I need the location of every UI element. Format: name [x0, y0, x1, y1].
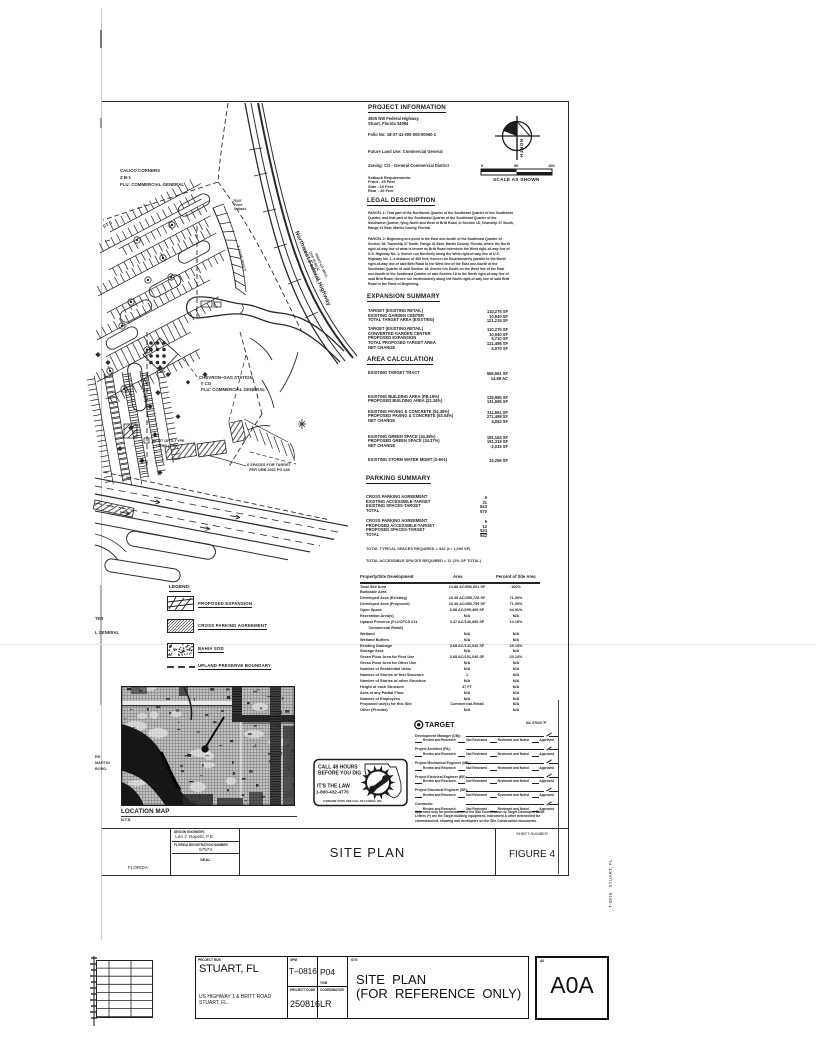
svg-text:FLU: COMMERCIAL GENERAL: FLU: COMMERCIAL GENERAL: [120, 182, 184, 187]
svg-text:FLU: COMMERCIAL GENERAL: FLU: COMMERCIAL GENERAL: [201, 387, 265, 392]
svg-text:Setback: Setback: [234, 207, 246, 211]
svg-text:CALICO CORNERS: CALICO CORNERS: [120, 168, 160, 173]
svg-text:RD: RD: [95, 755, 101, 759]
svg-text:Z B-1: Z B-1: [120, 175, 132, 180]
svg-text:1-800-432-4770: 1-800-432-4770: [316, 790, 349, 795]
svg-text:5 ACRE TRACT: 5 ACRE TRACT: [236, 245, 247, 272]
svg-text:BEFORE YOU DIG: BEFORE YOU DIG: [318, 771, 361, 777]
svg-text:MARTIN: MARTIN: [95, 761, 110, 765]
svg-text:T-0816 STUART, FL: T-0816 STUART, FL: [608, 859, 613, 908]
svg-text:TER: TER: [95, 616, 103, 621]
svg-text:SUNSHINE STATE ONE CALL OF FLO: SUNSHINE STATE ONE CALL OF FLORIDA, INC.: [323, 799, 383, 803]
svg-text:PER ORB 2061 PG 438: PER ORB 2061 PG 438: [249, 468, 290, 472]
svg-text:BORO: BORO: [95, 767, 106, 771]
svg-text:CHEVRON–GAS STATION: CHEVRON–GAS STATION: [199, 375, 253, 380]
svg-text:ET 0: ET 0: [102, 220, 113, 229]
svg-text:L GENERAL: L GENERAL: [95, 630, 120, 635]
svg-text:6 SPACES FOR TARGET: 6 SPACES FOR TARGET: [247, 463, 292, 467]
svg-text:# CG: # CG: [201, 381, 212, 386]
svg-text:30' UT OF D-TYPE: 30' UT OF D-TYPE: [152, 439, 185, 443]
